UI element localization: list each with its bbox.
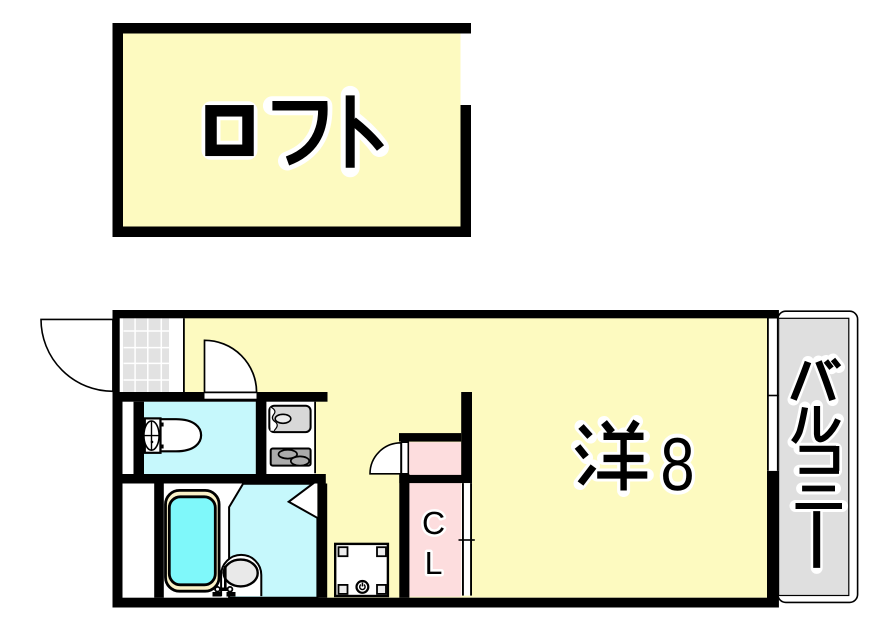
svg-text:C: C <box>422 505 445 541</box>
svg-text:L: L <box>425 545 443 581</box>
svg-text:8: 8 <box>660 422 694 506</box>
